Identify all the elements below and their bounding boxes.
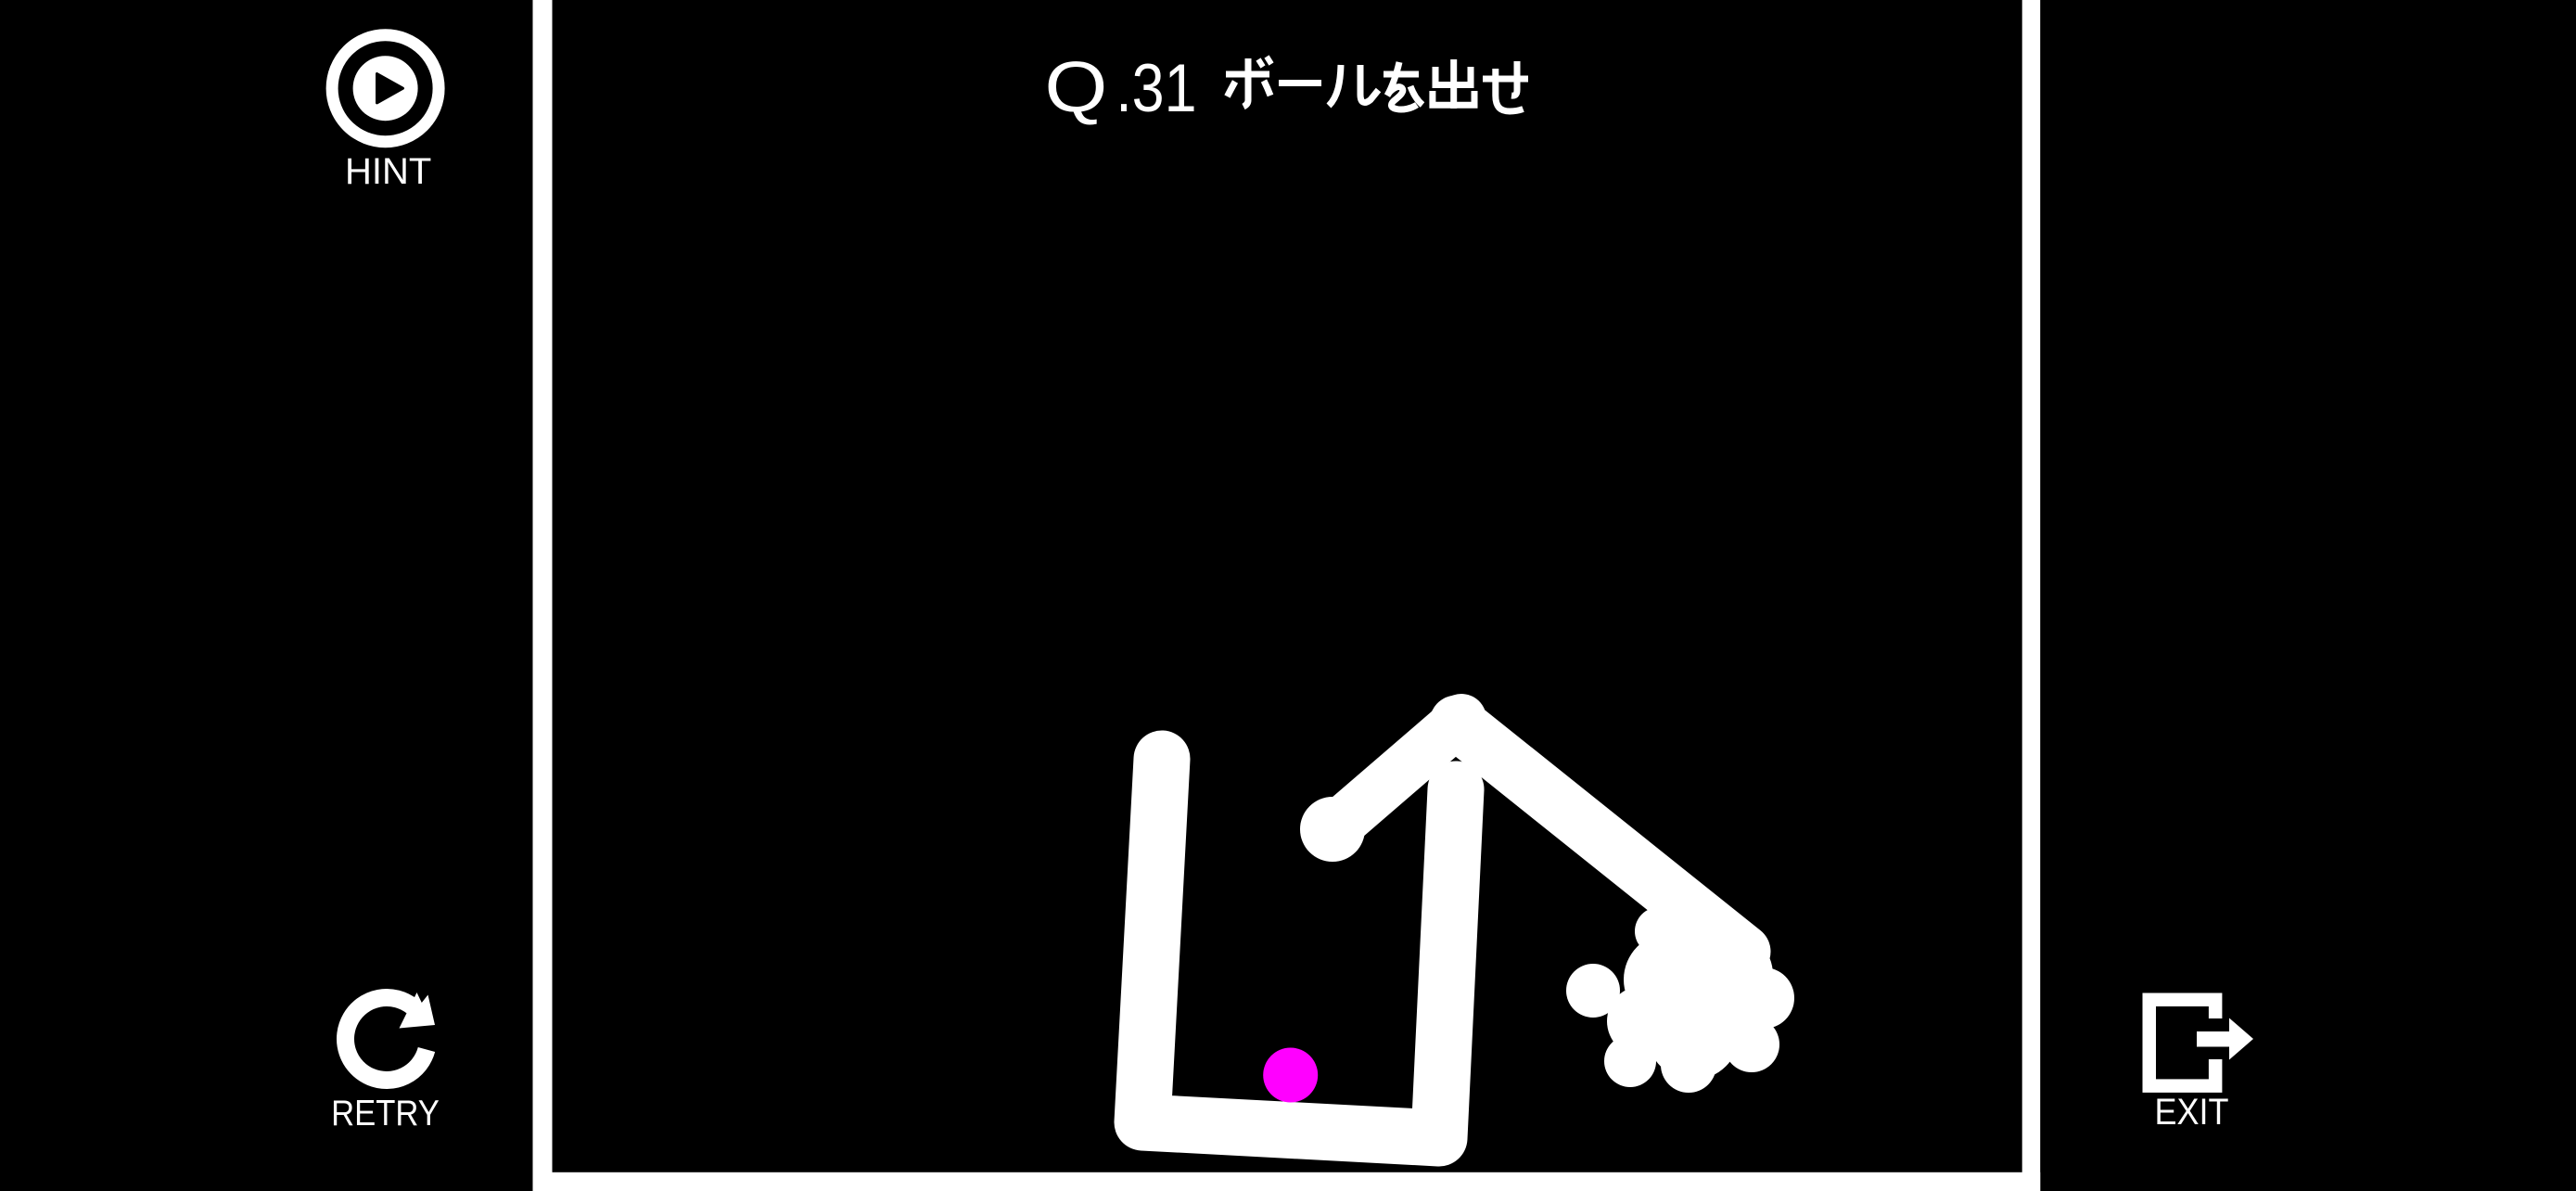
svg-text:.31: .31: [1116, 51, 1196, 126]
svg-text:HINT: HINT: [345, 151, 431, 192]
svg-text:EXIT: EXIT: [2154, 1092, 2228, 1133]
svg-text:Q: Q: [1044, 48, 1107, 127]
svg-text:RETRY: RETRY: [331, 1093, 440, 1133]
